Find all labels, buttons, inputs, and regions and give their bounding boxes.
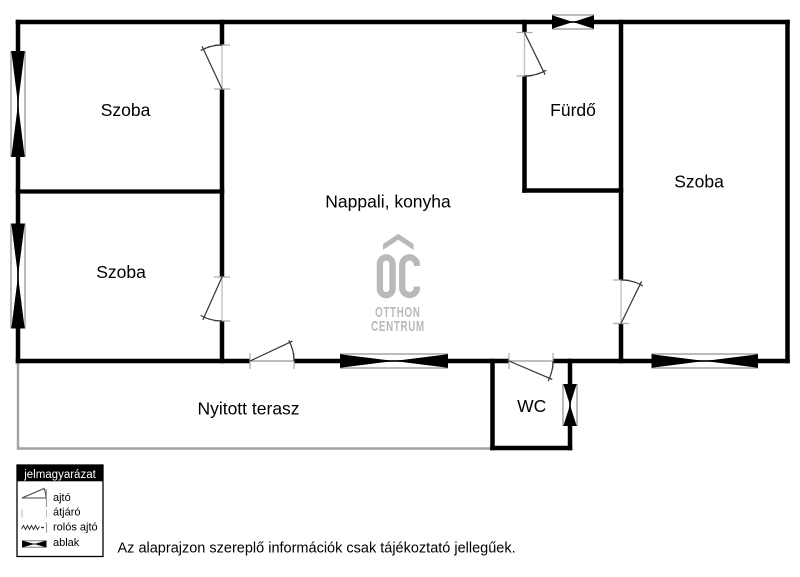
svg-text:Nyitott terasz: Nyitott terasz	[197, 399, 299, 419]
svg-text:rolós ajtó: rolós ajtó	[53, 522, 98, 534]
svg-text:ajtó: ajtó	[53, 492, 71, 504]
svg-text:Szoba: Szoba	[674, 171, 724, 191]
svg-text:CENTRUM: CENTRUM	[371, 318, 425, 334]
svg-text:Az alaprajzon szereplő informá: Az alaprajzon szereplő információk csak …	[118, 541, 516, 557]
svg-text:jelmagyarázat: jelmagyarázat	[23, 469, 96, 481]
svg-text:átjáró: átjáró	[53, 507, 81, 519]
svg-text:ablak: ablak	[53, 537, 80, 549]
svg-text:Szoba: Szoba	[96, 262, 146, 282]
svg-text:Fürdő: Fürdő	[550, 100, 596, 120]
svg-text:Nappali, konyha: Nappali, konyha	[325, 192, 451, 212]
svg-text:WC: WC	[517, 396, 546, 416]
svg-text:Szoba: Szoba	[101, 100, 151, 120]
